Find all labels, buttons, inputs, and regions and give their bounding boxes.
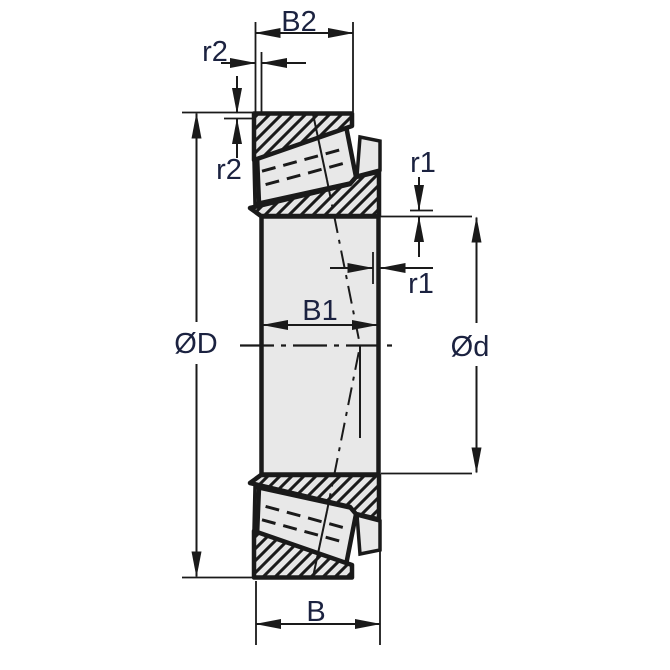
dim-label-outer-diameter: ØD xyxy=(174,328,218,360)
dim-label-r2-radial: r2 xyxy=(216,154,242,186)
dim-label-b: B xyxy=(306,596,325,628)
dim-label-r1-radial: r1 xyxy=(410,147,436,179)
dim-label-bore-diameter: Ød xyxy=(451,331,490,363)
bearing-drawing: B2 r2 r2 r1 r1 xyxy=(0,0,670,670)
cage-section-large-end-bottom xyxy=(357,515,380,554)
dim-label-b2: B2 xyxy=(281,6,316,38)
dim-label-r2-axial: r2 xyxy=(202,36,228,68)
dim-r2-axial: r2 xyxy=(202,36,306,112)
dim-B2: B2 xyxy=(256,6,354,112)
dim-r1-radial: r1 xyxy=(410,147,436,257)
dim-Od: Ød xyxy=(381,217,489,474)
cage-section-large-end-top xyxy=(357,137,380,176)
bearing-cross-section-svg: B2 r2 r2 r1 r1 xyxy=(0,0,670,670)
dim-label-r1-axial: r1 xyxy=(408,268,434,300)
dim-label-b1: B1 xyxy=(302,295,337,327)
dim-r2-radial: r2 xyxy=(216,76,253,186)
